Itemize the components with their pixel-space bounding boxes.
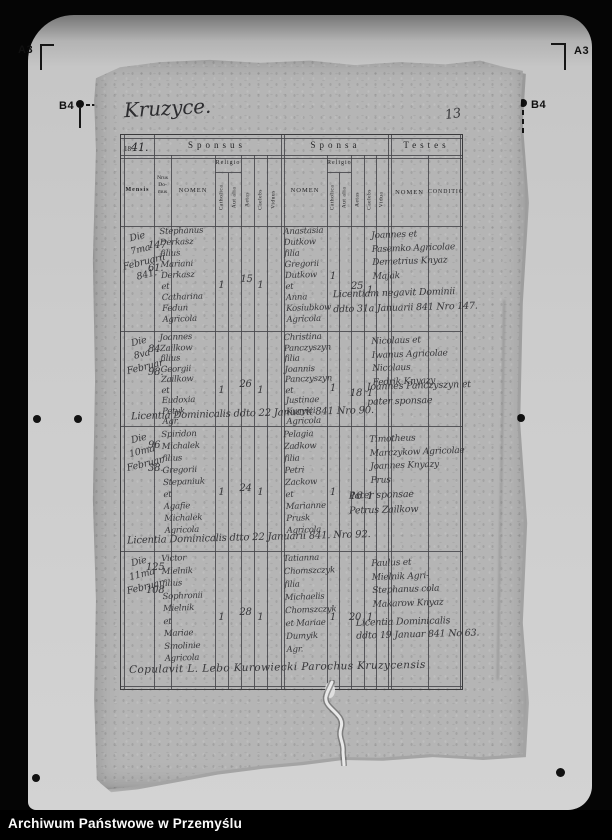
b4-tail-left-icon bbox=[79, 108, 81, 128]
entry-sponsus-caelebs-mark: 1 bbox=[254, 487, 267, 498]
header-viduus: Viduus bbox=[269, 178, 278, 222]
header-aetas-sponsus: Aetas bbox=[243, 178, 252, 222]
entry-testes-names: Paulus et Mielnik Agri- Stephanus cola M… bbox=[371, 554, 491, 612]
registration-dot bbox=[556, 768, 565, 777]
b4-label-right: B4 bbox=[531, 99, 546, 111]
entry-sponsus-name: Stephanus Derkasz filius Mariani Derkasz… bbox=[159, 225, 224, 326]
header-nrus-domus: Nrus Do- mus bbox=[154, 175, 171, 196]
entry-note: Licentia Dominicalis ddto 19 Januar 841 … bbox=[356, 613, 487, 642]
entry-sponsa-name: Tatianna Chomszczyk filia Michaelis Chom… bbox=[283, 551, 349, 657]
entry-sponsus-aetas: 24 bbox=[238, 483, 253, 494]
entry-testes-names: Joannes et Pasemko Agricolae Demetrius K… bbox=[371, 226, 491, 284]
header-testes: Testes bbox=[391, 140, 462, 150]
paper-tear bbox=[316, 680, 364, 766]
header-caelebs-sponsus: Caelebs bbox=[256, 178, 265, 222]
year-cell: 1841. bbox=[124, 141, 154, 154]
a3-bracket-left-icon bbox=[40, 44, 42, 70]
ledger-table: 1841. Sponsus Sponsa Testes Mensis Nrus … bbox=[120, 134, 463, 690]
header-catholica-sponsus: Catholica bbox=[217, 176, 226, 220]
village-title-script: Kruzyce. bbox=[123, 94, 211, 123]
b4-label-left: B4 bbox=[59, 100, 74, 112]
entry-testes-names: Timotheus Marczykow Agricolae Joannes Kn… bbox=[369, 430, 489, 488]
entry-sponsus-catholica-mark: 1 bbox=[215, 280, 228, 291]
b4-dash-icon bbox=[86, 104, 90, 106]
registration-dot bbox=[32, 774, 40, 782]
column-rule bbox=[267, 155, 268, 689]
header-nomen-testes: NOMEN bbox=[391, 189, 428, 196]
entry-note: Licentiam negavit Dominii ddto 31a Janua… bbox=[333, 283, 509, 318]
row-rule bbox=[121, 155, 462, 156]
entry-sponsus-catholica-mark: 1 bbox=[215, 612, 228, 623]
entry-sponsus-caelebs-mark: 1 bbox=[254, 280, 267, 291]
b4-dot-left-icon bbox=[76, 100, 84, 108]
entry-sponsus-caelebs-mark: 1 bbox=[254, 385, 267, 396]
header-nomen-sponsa: NOMEN bbox=[283, 187, 327, 194]
column-rule bbox=[351, 155, 352, 689]
column-rule bbox=[228, 173, 229, 689]
entry-sponsa-name: Pelagia Zadkow filia Petri Zackow et Mar… bbox=[283, 427, 349, 537]
year-handwritten: 41. bbox=[131, 141, 149, 154]
a3-bracket-left-icon bbox=[40, 44, 54, 46]
registration-dot bbox=[74, 415, 82, 423]
entry-sponsus-catholica-mark: 1 bbox=[215, 487, 228, 498]
entry-sponsa-catholica-mark: 1 bbox=[327, 487, 339, 498]
entry-note: Pater sponsae Petrus Zailkow bbox=[349, 485, 470, 518]
header-caelebs-sponsa: Caelebs bbox=[366, 178, 375, 222]
entry-sponsus-aetas: 28 bbox=[238, 607, 253, 618]
page-number: 13 bbox=[444, 106, 462, 123]
header-sponsa: Sponsa bbox=[283, 140, 388, 150]
registration-dot bbox=[33, 415, 41, 423]
scan-stage: A3 A3 B4 B4 Kruzyce. 13 bbox=[0, 0, 612, 840]
a3-label-left: A3 bbox=[18, 44, 33, 56]
header-mensis: Mensis bbox=[121, 187, 154, 193]
entry-sponsa-catholica-mark: 1 bbox=[327, 383, 339, 394]
entry-sponsa-aetas: 18 bbox=[349, 388, 363, 399]
header-catholica-sponsa: Catholica bbox=[329, 176, 338, 220]
year-printed: 18 bbox=[124, 145, 131, 153]
a3-bracket-right-icon bbox=[564, 43, 566, 70]
header-religio-sponsa: Religio bbox=[327, 160, 351, 166]
entry-sponsus-name: Victor Mielnik filius Sophronii Mielnik … bbox=[161, 551, 227, 666]
row-rule bbox=[121, 158, 462, 159]
entry-sponsa-catholica-mark: 1 bbox=[327, 271, 339, 282]
entry-sponsus-aetas: 26 bbox=[238, 379, 253, 390]
entry-sponsus-caelebs-mark: 1 bbox=[254, 612, 267, 623]
column-rule bbox=[254, 155, 255, 689]
header-nomen-sponsus: NOMEN bbox=[171, 187, 215, 194]
entry-sponsus-catholica-mark: 1 bbox=[215, 385, 228, 396]
column-rule bbox=[124, 135, 125, 689]
a3-label-right: A3 bbox=[574, 45, 589, 57]
header-religio-sponsus: Religio bbox=[215, 160, 241, 166]
entry-sponsa-catholica-mark: 1 bbox=[327, 612, 339, 623]
archive-caption: Archiwum Państwowe w Przemyślu bbox=[8, 816, 242, 831]
archive-caption-bar: Archiwum Państwowe w Przemyślu bbox=[0, 810, 612, 840]
header-aut-alia-sponsus: Aut alia bbox=[230, 176, 239, 220]
entry-sponsus-name: Spiridon Michalek filius Gregorii Stepan… bbox=[161, 427, 227, 537]
row-rule bbox=[121, 138, 462, 139]
header-conditio: CONDITIO bbox=[428, 189, 462, 195]
column-rule bbox=[364, 155, 365, 689]
header-aetas-sponsa: Aetas bbox=[353, 178, 362, 222]
header-sponsus: Sponsus bbox=[154, 140, 280, 150]
entry-sponsus-aetas: 15 bbox=[239, 274, 254, 285]
row-rule bbox=[121, 686, 462, 687]
header-vidua: Vidua bbox=[378, 178, 387, 222]
header-aut-alia-sponsa: Aut alia bbox=[341, 176, 350, 220]
